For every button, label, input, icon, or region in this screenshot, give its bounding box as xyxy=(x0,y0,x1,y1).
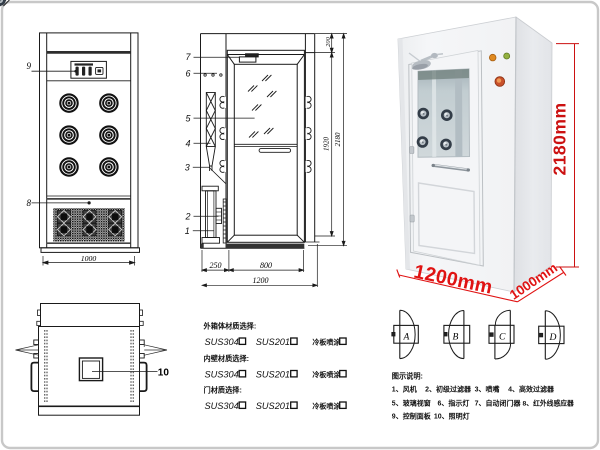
svg-text:2180mm: 2180mm xyxy=(550,102,570,175)
svg-text:2: 2 xyxy=(185,212,191,222)
svg-text:9、控制面板: 9、控制面板 xyxy=(392,412,432,421)
svg-text:1、风机: 1、风机 xyxy=(392,384,417,393)
svg-text:2、初级过滤器: 2、初级过滤器 xyxy=(425,384,472,393)
svg-text:1: 1 xyxy=(185,226,190,236)
svg-text:外箱体材质选择:: 外箱体材质选择: xyxy=(203,322,257,331)
svg-text:7、自动闭门器: 7、自动闭门器 xyxy=(475,399,522,408)
svg-text:SUS201: SUS201 xyxy=(256,401,290,411)
svg-text:2180: 2180 xyxy=(334,132,342,147)
svg-text:C: C xyxy=(499,331,506,342)
svg-text:内壁材质选择:: 内壁材质选择: xyxy=(204,354,250,363)
svg-text:3、喷嘴: 3、喷嘴 xyxy=(475,384,500,393)
svg-text:250: 250 xyxy=(210,261,222,270)
svg-text:5、玻璃视窗: 5、玻璃视窗 xyxy=(392,399,431,408)
svg-text:3: 3 xyxy=(185,162,190,172)
svg-text:4: 4 xyxy=(186,139,191,149)
svg-text:6: 6 xyxy=(186,69,191,79)
svg-text:8、红外线感应器: 8、红外线感应器 xyxy=(523,399,575,408)
svg-text:冷板喷涂: 冷板喷涂 xyxy=(312,370,340,379)
svg-text:B: B xyxy=(453,331,459,342)
svg-text:1000: 1000 xyxy=(81,254,97,263)
svg-text:图示说明:: 图示说明: xyxy=(392,371,423,380)
svg-text:门材质选择:: 门材质选择: xyxy=(204,386,242,395)
svg-text:SUS304: SUS304 xyxy=(205,370,239,380)
svg-text:4、高效过滤器: 4、高效过滤器 xyxy=(508,384,555,393)
svg-text:10: 10 xyxy=(158,367,170,378)
svg-text:D: D xyxy=(549,332,557,343)
svg-text:6、指示灯: 6、指示灯 xyxy=(438,399,470,408)
svg-text:1920: 1920 xyxy=(322,137,330,152)
svg-text:冷板喷涂: 冷板喷涂 xyxy=(312,402,340,411)
svg-text:800: 800 xyxy=(260,261,272,270)
svg-text:SUS304: SUS304 xyxy=(205,337,239,347)
svg-text:200: 200 xyxy=(325,36,332,47)
svg-text:10、照明灯: 10、照明灯 xyxy=(434,412,470,421)
svg-text:冷板喷涂: 冷板喷涂 xyxy=(312,338,340,347)
svg-text:8: 8 xyxy=(27,198,32,208)
svg-text:SUS201: SUS201 xyxy=(256,337,290,347)
svg-text:SUS201: SUS201 xyxy=(256,370,290,380)
svg-text:SUS304: SUS304 xyxy=(205,401,239,411)
svg-text:1200: 1200 xyxy=(253,276,269,285)
svg-text:A: A xyxy=(403,331,410,342)
svg-text:9: 9 xyxy=(27,61,32,71)
